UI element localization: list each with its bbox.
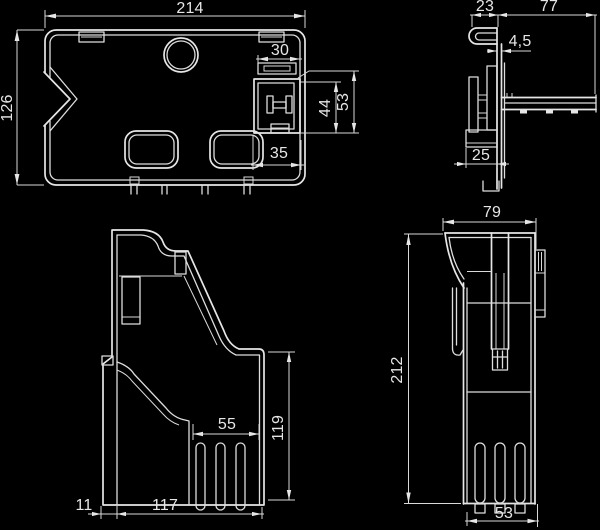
dim-slot-field-width-label: 55 (218, 416, 236, 433)
dim-valve-height-outer-label: 53 (335, 93, 352, 111)
dim-front-top-width-label: 79 (483, 204, 501, 221)
dim-plan-width-label: 214 (176, 0, 203, 17)
dim-wall-thickness-label: 4,5 (509, 33, 532, 50)
dim-front-height-label: 212 (389, 356, 406, 383)
dim-valve-height-inner-label: 44 (317, 99, 334, 117)
dim-valve-bottom-width-label: 35 (270, 145, 288, 162)
drawing-svg: 214 126 30 44 (0, 0, 600, 530)
dim-front-bottom-width-label: 53 (495, 505, 513, 522)
dim-lower-height-label: 119 (270, 415, 287, 441)
dim-valve-top-width-label: 30 (271, 42, 289, 59)
dim-hook-offset-label: 23 (476, 0, 494, 15)
dim-rail-length-label: 77 (540, 0, 558, 15)
dim-base-width-label: 117 (152, 497, 178, 514)
dim-plan-depth-label: 126 (0, 94, 16, 121)
dim-foot-width-label: 25 (472, 147, 490, 164)
dim-base-inset-label: 11 (75, 497, 92, 514)
technical-drawing-canvas: 214 126 30 44 (0, 0, 600, 530)
